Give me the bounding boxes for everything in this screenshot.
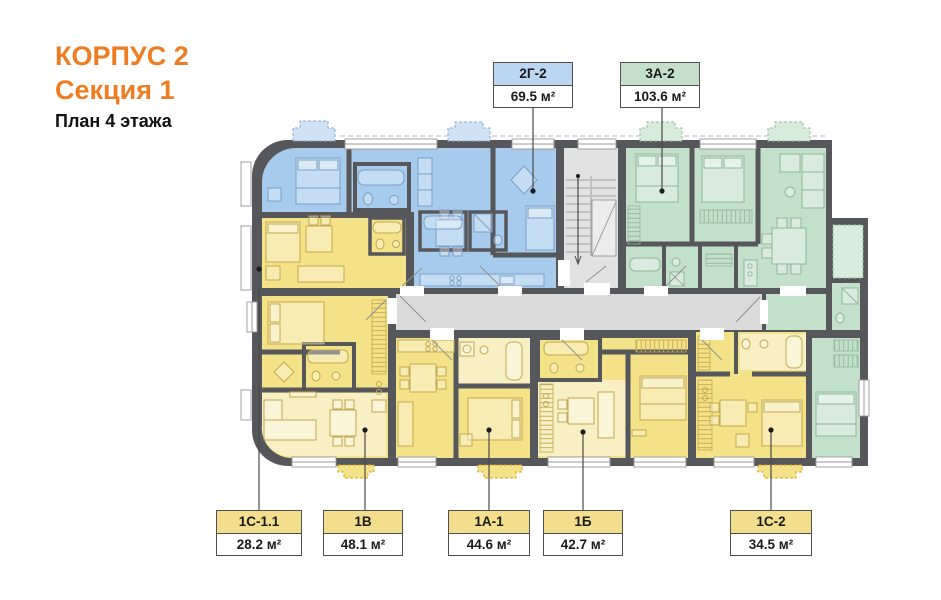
balcony-bottom-3 [758,465,802,478]
window-left-3 [241,390,251,420]
corridor [396,294,762,330]
unit-1b[interactable] [538,338,688,458]
unit-1a-1[interactable] [396,338,530,458]
balcony-top-4 [768,122,810,141]
balcony-top-1 [293,121,335,141]
apartment-code: 1Б [544,511,622,534]
apartment-label-3a-2[interactable]: 3А-2 103.6 м² [620,62,700,108]
section-title: Секция 1 [55,74,189,108]
building-title: КОРПУС 2 [55,40,189,74]
balcony-right [833,225,863,278]
floor-plan-page: КОРПУС 2 Секция 1 План 4 этажа 2Г-2 69.5… [0,0,941,600]
balcony-top-2 [448,122,490,141]
balcony-bottom-1 [338,465,374,478]
apartment-label-1b[interactable]: 1Б 42.7 м² [543,510,623,556]
apartment-area: 44.6 м² [449,534,529,555]
apartment-label-1s-2[interactable]: 1С-2 34.5 м² [730,510,812,556]
balcony-left-1 [241,162,251,206]
apartment-label-1a-1[interactable]: 1А-1 44.6 м² [448,510,530,556]
apartment-code: 2Г-2 [494,63,572,86]
unit-1s-1-1[interactable] [262,216,406,288]
floor-title: План 4 этажа [55,110,189,133]
plan-title-block: КОРПУС 2 Секция 1 План 4 этажа [55,40,189,133]
balcony-bottom-2 [478,465,522,478]
apartment-label-1v[interactable]: 1В 48.1 м² [323,510,403,556]
apartment-code: 3А-2 [621,63,699,86]
apartment-area: 103.6 м² [621,86,699,107]
apartment-label-2g-2[interactable]: 2Г-2 69.5 м² [493,62,573,108]
unit-1v[interactable] [262,296,388,458]
apartment-area: 48.1 м² [324,534,402,555]
apartment-area: 28.2 м² [217,534,301,555]
stairwell [558,148,618,288]
balcony-left-2 [241,226,251,290]
apartment-code: 1С-2 [731,511,811,534]
apartment-label-1s-1-1[interactable]: 1С-1.1 28.2 м² [216,510,302,556]
apartment-code: 1В [324,511,402,534]
apartment-area: 34.5 м² [731,534,811,555]
apartment-code: 1С-1.1 [217,511,301,534]
apartment-code: 1А-1 [449,511,529,534]
apartment-area: 42.7 м² [544,534,622,555]
apartment-area: 69.5 м² [494,86,572,107]
balcony-top-3 [640,122,682,141]
